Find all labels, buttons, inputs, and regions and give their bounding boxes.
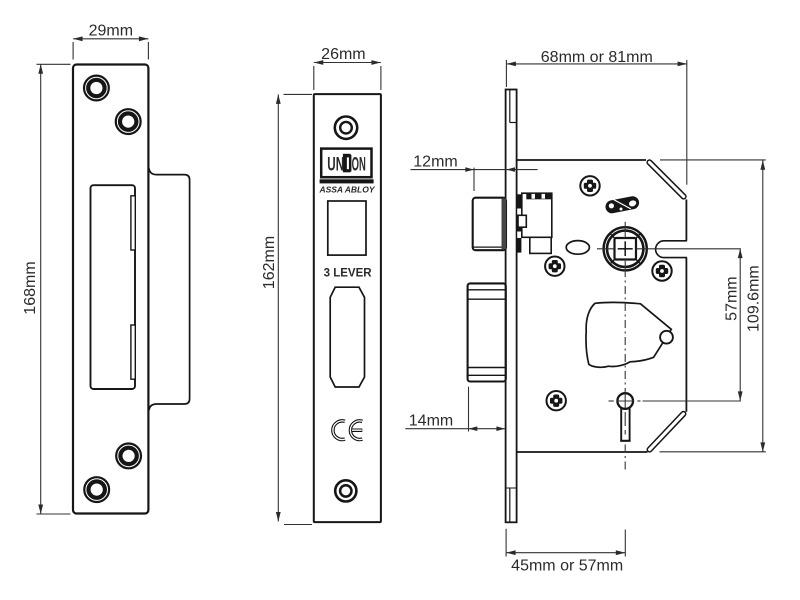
svg-text:57mm: 57mm	[723, 276, 740, 320]
svg-text:168mm: 168mm	[22, 261, 39, 314]
svg-text:109.6mm: 109.6mm	[746, 265, 763, 332]
svg-text:12mm: 12mm	[413, 153, 457, 170]
svg-text:45mm or 57mm: 45mm or 57mm	[511, 557, 623, 574]
svg-text:68mm or 81mm: 68mm or 81mm	[541, 49, 653, 66]
svg-text:UN: UN	[327, 153, 344, 175]
svg-text:ASSA ABLOY: ASSA ABLOY	[318, 185, 375, 195]
svg-text:3 LEVER: 3 LEVER	[324, 267, 373, 279]
svg-text:14mm: 14mm	[409, 412, 453, 429]
svg-text:29mm: 29mm	[89, 23, 133, 40]
svg-text:26mm: 26mm	[321, 46, 365, 63]
svg-text:ON: ON	[352, 153, 366, 175]
svg-text:162mm: 162mm	[261, 236, 278, 289]
